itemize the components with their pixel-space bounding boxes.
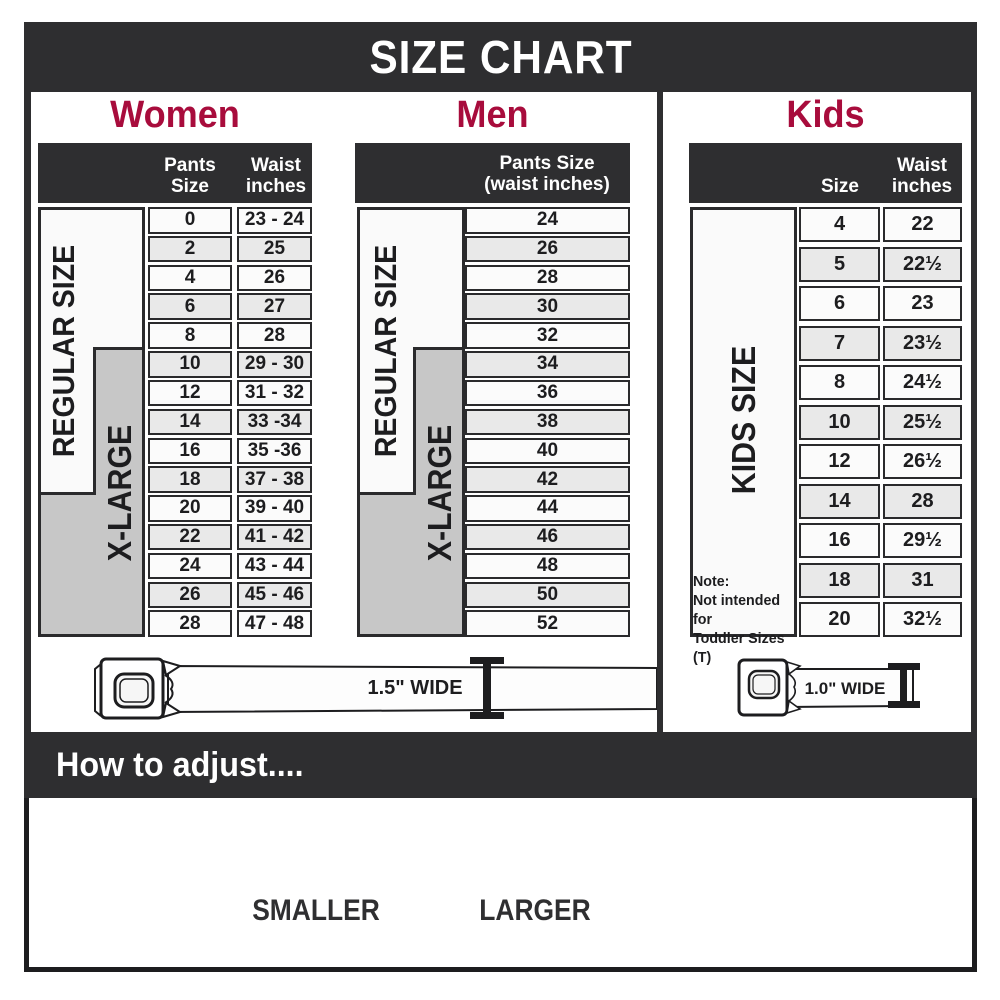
waist-cell: 35 -36 bbox=[237, 438, 312, 465]
waist-cell: 43 - 44 bbox=[237, 553, 312, 580]
waist-cell: 37 - 38 bbox=[237, 466, 312, 493]
table-row: 18 37 - 38 bbox=[148, 466, 312, 493]
table-row: 44 bbox=[465, 495, 630, 522]
table-row: 24 43 - 44 bbox=[148, 553, 312, 580]
table-row: 24 bbox=[465, 207, 630, 234]
table-row: 26 bbox=[465, 236, 630, 263]
pants-size-cell: 22 bbox=[148, 524, 232, 551]
pants-size-cell: 26 bbox=[148, 582, 232, 609]
waist-cell: 23½ bbox=[883, 326, 962, 361]
kids-table-header: Size Waist inches bbox=[689, 143, 962, 203]
table-row: 16 29½ bbox=[799, 523, 962, 558]
pants-size-cell: 8 bbox=[148, 322, 232, 349]
pants-size-cell: 12 bbox=[148, 380, 232, 407]
men-regular-size-label: REGULAR SIZE bbox=[368, 245, 404, 457]
waist-cell: 23 bbox=[883, 286, 962, 321]
pants-size-cell: 32 bbox=[465, 322, 630, 349]
size-cell: 7 bbox=[799, 326, 880, 361]
table-row: 30 bbox=[465, 293, 630, 320]
pants-size-cell: 28 bbox=[465, 265, 630, 292]
table-row: 10 29 - 30 bbox=[148, 351, 312, 378]
page-title: SIZE CHART bbox=[369, 30, 632, 84]
pants-size-cell: 26 bbox=[465, 236, 630, 263]
men-col-pants-size: Pants Size (waist inches) bbox=[467, 153, 627, 195]
table-row: 28 bbox=[465, 265, 630, 292]
table-row: 14 33 -34 bbox=[148, 409, 312, 436]
pants-size-cell: 10 bbox=[148, 351, 232, 378]
adjust-heading-bar: How to adjust.... bbox=[24, 732, 977, 798]
adjust-heading: How to adjust.... bbox=[56, 746, 304, 785]
waist-cell: 28 bbox=[883, 484, 962, 519]
waist-cell: 28 bbox=[237, 322, 312, 349]
pants-size-cell: 14 bbox=[148, 409, 232, 436]
table-row: 5 22½ bbox=[799, 247, 962, 282]
men-heading: Men bbox=[362, 94, 623, 137]
pants-size-cell: 0 bbox=[148, 207, 232, 234]
waist-cell: 26 bbox=[237, 265, 312, 292]
pants-size-cell: 28 bbox=[148, 610, 232, 637]
table-row: 26 45 - 46 bbox=[148, 582, 312, 609]
table-row: 38 bbox=[465, 409, 630, 436]
waist-cell: 41 - 42 bbox=[237, 524, 312, 551]
women-xlarge-label: X-LARGE bbox=[101, 425, 139, 562]
pants-size-cell: 42 bbox=[465, 466, 630, 493]
waist-cell: 45 - 46 bbox=[237, 582, 312, 609]
right-border bbox=[971, 92, 977, 732]
table-row: 34 bbox=[465, 351, 630, 378]
table-row: 0 23 - 24 bbox=[148, 207, 312, 234]
table-row: 20 39 - 40 bbox=[148, 495, 312, 522]
waist-cell: 39 - 40 bbox=[237, 495, 312, 522]
waist-cell: 32½ bbox=[883, 602, 962, 637]
size-cell: 18 bbox=[799, 563, 880, 598]
table-row: 7 23½ bbox=[799, 326, 962, 361]
table-row: 52 bbox=[465, 610, 630, 637]
kids-col-waist: Waist inches bbox=[877, 155, 967, 197]
size-cell: 20 bbox=[799, 602, 880, 637]
waist-cell: 31 - 32 bbox=[237, 380, 312, 407]
size-cell: 14 bbox=[799, 484, 880, 519]
table-row: 14 28 bbox=[799, 484, 962, 519]
table-row: 12 31 - 32 bbox=[148, 380, 312, 407]
size-cell: 6 bbox=[799, 286, 880, 321]
pants-size-cell: 38 bbox=[465, 409, 630, 436]
women-col-pants-size: Pants Size bbox=[148, 155, 232, 197]
men-kids-divider bbox=[657, 92, 663, 732]
size-chart-page: SIZE CHART Women Men Kids Pants Size Wai… bbox=[0, 0, 1000, 1000]
waist-cell: 24½ bbox=[883, 365, 962, 400]
kids-col-size: Size bbox=[795, 176, 885, 197]
pants-size-cell: 44 bbox=[465, 495, 630, 522]
pants-size-cell: 20 bbox=[148, 495, 232, 522]
table-row: 6 27 bbox=[148, 293, 312, 320]
pants-size-cell: 52 bbox=[465, 610, 630, 637]
kids-size-label: KIDS SIZE bbox=[725, 346, 763, 494]
waist-cell: 22½ bbox=[883, 247, 962, 282]
men-size-table: 24 26 28 30 32 34 36 bbox=[465, 207, 630, 637]
table-row: 22 41 - 42 bbox=[148, 524, 312, 551]
table-row: 28 47 - 48 bbox=[148, 610, 312, 637]
waist-cell: 26½ bbox=[883, 444, 962, 479]
waist-cell: 29½ bbox=[883, 523, 962, 558]
waist-cell: 23 - 24 bbox=[237, 207, 312, 234]
waist-cell: 25½ bbox=[883, 405, 962, 440]
adjust-illustration-box bbox=[24, 798, 977, 972]
table-row: 40 bbox=[465, 438, 630, 465]
women-table-header: Pants Size Waist inches bbox=[38, 143, 312, 203]
table-row: 48 bbox=[465, 553, 630, 580]
pants-size-cell: 6 bbox=[148, 293, 232, 320]
women-heading: Women bbox=[45, 94, 305, 137]
size-cell: 4 bbox=[799, 207, 880, 242]
waist-cell: 47 - 48 bbox=[237, 610, 312, 637]
waist-cell: 22 bbox=[883, 207, 962, 242]
kids-belt-width-label: 1.0" WIDE bbox=[800, 679, 890, 699]
table-row: 32 bbox=[465, 322, 630, 349]
pants-size-cell: 40 bbox=[465, 438, 630, 465]
table-row: 46 bbox=[465, 524, 630, 551]
table-row: 6 23 bbox=[799, 286, 962, 321]
smaller-label: SMALLER bbox=[249, 894, 383, 928]
left-border bbox=[24, 92, 31, 732]
table-row: 18 31 bbox=[799, 563, 962, 598]
pants-size-cell: 36 bbox=[465, 380, 630, 407]
men-table-header: Pants Size (waist inches) bbox=[355, 143, 630, 203]
pants-size-cell: 2 bbox=[148, 236, 232, 263]
kids-note: Note: Not intended for Toddler Sizes (T) bbox=[693, 572, 792, 667]
pants-size-cell: 46 bbox=[465, 524, 630, 551]
waist-cell: 29 - 30 bbox=[237, 351, 312, 378]
table-row: 16 35 -36 bbox=[148, 438, 312, 465]
waist-cell: 31 bbox=[883, 563, 962, 598]
waist-cell: 25 bbox=[237, 236, 312, 263]
waist-cell: 33 -34 bbox=[237, 409, 312, 436]
table-row: 8 24½ bbox=[799, 365, 962, 400]
pants-size-cell: 48 bbox=[465, 553, 630, 580]
title-bar: SIZE CHART bbox=[24, 22, 977, 92]
table-row: 42 bbox=[465, 466, 630, 493]
men-xlarge-label: X-LARGE bbox=[421, 425, 459, 562]
pants-size-cell: 30 bbox=[465, 293, 630, 320]
pants-size-cell: 18 bbox=[148, 466, 232, 493]
table-row: 2 25 bbox=[148, 236, 312, 263]
size-cell: 8 bbox=[799, 365, 880, 400]
table-row: 10 25½ bbox=[799, 405, 962, 440]
pants-size-cell: 34 bbox=[465, 351, 630, 378]
waist-cell: 27 bbox=[237, 293, 312, 320]
size-cell: 10 bbox=[799, 405, 880, 440]
kids-heading: Kids bbox=[696, 94, 955, 137]
larger-label: LARGER bbox=[469, 894, 601, 928]
size-cell: 5 bbox=[799, 247, 880, 282]
pants-size-cell: 16 bbox=[148, 438, 232, 465]
pants-size-cell: 50 bbox=[465, 582, 630, 609]
women-regular-size-label: REGULAR SIZE bbox=[46, 245, 82, 457]
size-cell: 12 bbox=[799, 444, 880, 479]
pants-size-cell: 24 bbox=[148, 553, 232, 580]
table-row: 36 bbox=[465, 380, 630, 407]
table-row: 8 28 bbox=[148, 322, 312, 349]
table-row: 4 26 bbox=[148, 265, 312, 292]
pants-size-cell: 4 bbox=[148, 265, 232, 292]
pants-size-cell: 24 bbox=[465, 207, 630, 234]
adult-belt-width-label: 1.5" WIDE bbox=[340, 677, 490, 700]
women-size-table: 0 23 - 24 2 25 4 26 6 27 8 28 bbox=[148, 207, 312, 637]
kids-size-table: 4 22 5 22½ 6 23 7 23½ 8 24½ bbox=[799, 207, 962, 637]
table-row: 12 26½ bbox=[799, 444, 962, 479]
table-row: 50 bbox=[465, 582, 630, 609]
table-row: 4 22 bbox=[799, 207, 962, 242]
size-cell: 16 bbox=[799, 523, 880, 558]
table-row: 20 32½ bbox=[799, 602, 962, 637]
women-col-waist: Waist inches bbox=[234, 155, 318, 197]
